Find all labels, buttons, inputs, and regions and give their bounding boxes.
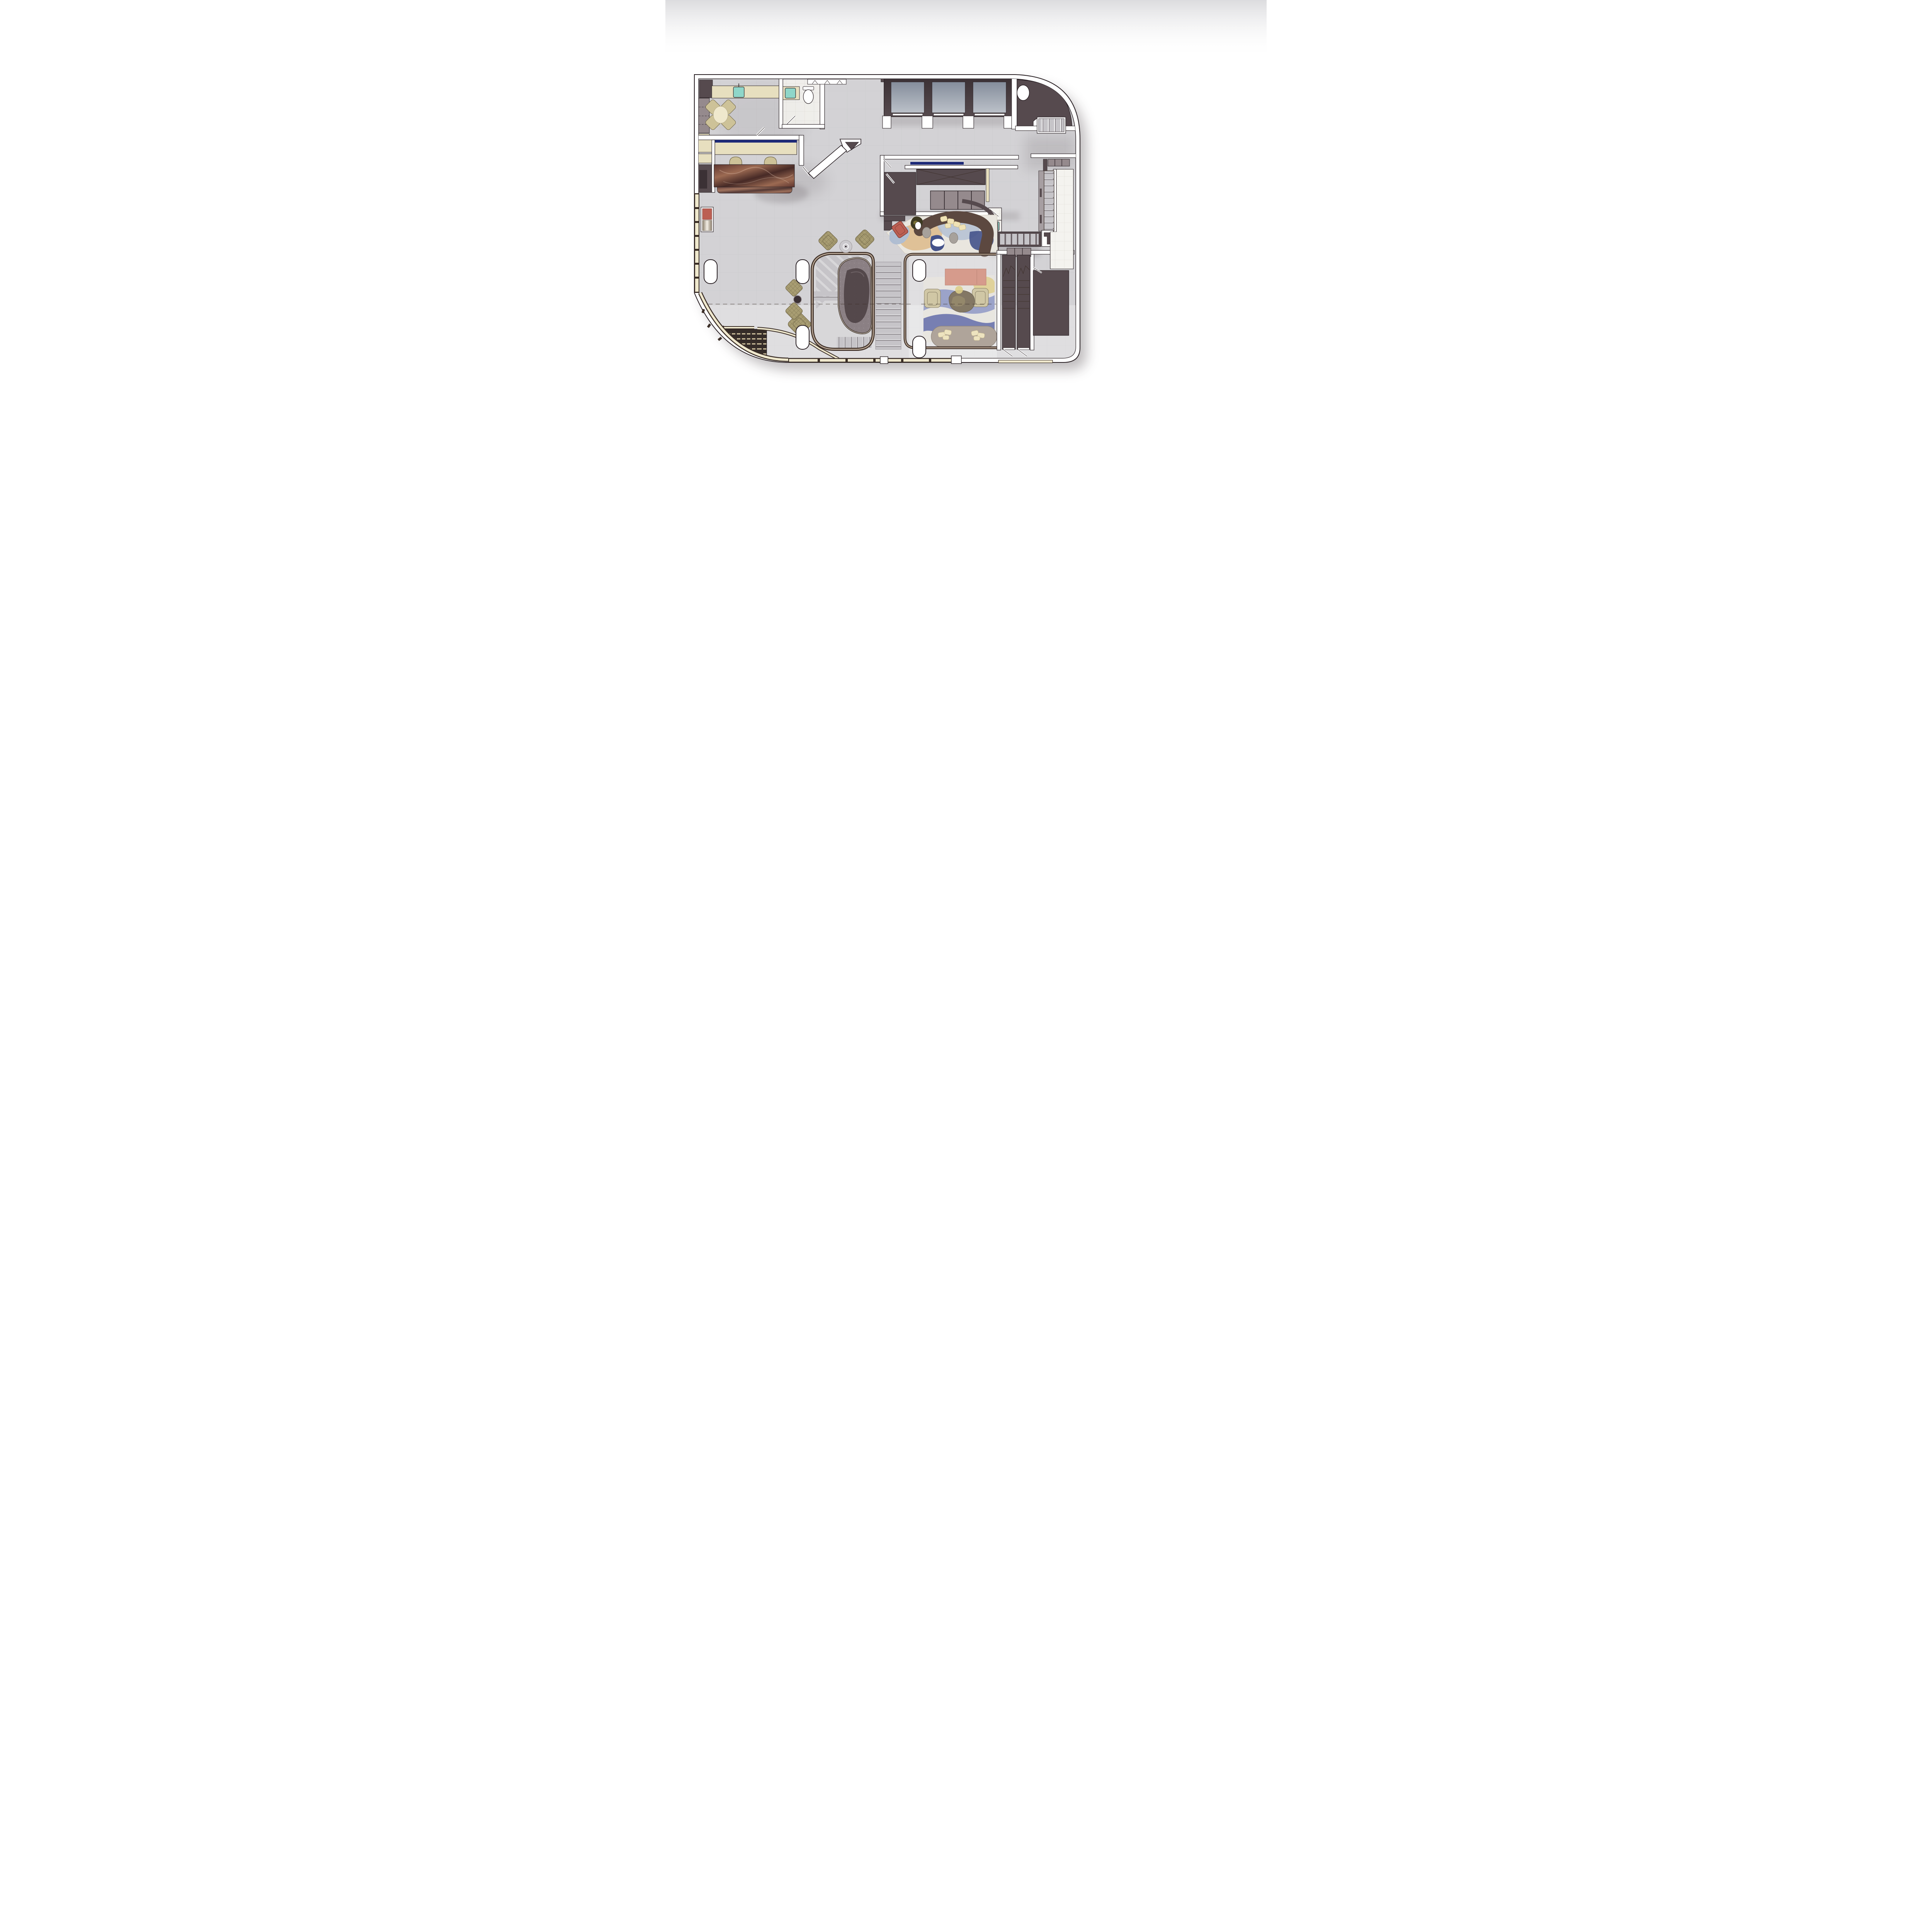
- entry-sill: [998, 360, 1053, 363]
- small-round-table: [794, 296, 801, 303]
- lounge-rug: [886, 215, 998, 253]
- credenza-navy-edge: [715, 140, 797, 143]
- stone-coffee-table: [949, 290, 975, 312]
- elevator-door: [934, 114, 964, 116]
- dining-set: [705, 99, 736, 131]
- floor-slab: [699, 79, 1076, 358]
- building-outer-wall: [694, 75, 1080, 362]
- restroom-door-edge: [785, 116, 795, 126]
- dining-chair: [720, 99, 736, 115]
- desk-front-ledge: [717, 187, 792, 193]
- corner-room-fill: [1017, 80, 1072, 128]
- restroom-door-leaf: [785, 116, 795, 126]
- red-armchair: [891, 221, 908, 239]
- landing-l-wall: [1044, 233, 1051, 244]
- left-window-band: [694, 193, 699, 293]
- dining-chair: [705, 99, 721, 115]
- curved-wall: [962, 201, 997, 251]
- feature-rail-inner: [812, 253, 873, 349]
- lounge-armchair-seat: [927, 292, 937, 305]
- elevator-door: [893, 114, 923, 116]
- upper-lounge: [886, 201, 998, 253]
- mullion: [845, 359, 848, 362]
- entry-mat: [723, 329, 767, 356]
- corner-room-wall: [1015, 126, 1077, 131]
- backdrop: [665, 0, 1267, 451]
- locker-row: [1007, 248, 1031, 257]
- arched-niche: [1033, 117, 1049, 128]
- column-pill: [704, 325, 717, 349]
- pit-rail-dark: [838, 258, 872, 333]
- core-walls: [880, 155, 1019, 216]
- canopy-floor-wash: [699, 305, 1077, 359]
- column-pill: [704, 260, 717, 284]
- mullion: [701, 309, 705, 313]
- cabinet-dividers: [699, 107, 709, 124]
- back-stair-horizontal: [998, 230, 1053, 257]
- bench-frame: [701, 207, 713, 232]
- right-boh: [997, 154, 1077, 358]
- bottom-window-band: [788, 356, 1053, 364]
- dark-cabinet: [1043, 159, 1047, 171]
- marble-veins: [719, 167, 793, 178]
- lobby-angled-wall: [803, 139, 861, 179]
- elevator-bank: [881, 76, 1017, 129]
- wall-niche-triangle: [845, 142, 859, 150]
- stone-table-top: [951, 296, 965, 306]
- pouf: [922, 227, 931, 238]
- corridor-door-edge: [1055, 289, 1065, 294]
- mop-sink: [990, 222, 999, 231]
- bottom-steps: [837, 337, 872, 348]
- entry-vestibule: [699, 304, 996, 359]
- shaft-treads: [1018, 281, 1029, 308]
- misc-doors: [883, 159, 1042, 273]
- column-pill: [796, 325, 809, 349]
- handrail-post: [1040, 215, 1042, 223]
- stair-flight: [1044, 171, 1054, 231]
- mullion: [695, 207, 699, 209]
- corner-shaft-room: [1015, 80, 1077, 131]
- bank-right-wall: [1012, 78, 1017, 129]
- cabinet-column: [699, 98, 709, 133]
- feature-floor: [812, 253, 873, 349]
- shaft-stub: [881, 76, 893, 82]
- lounge-armchair: [972, 288, 988, 307]
- reception-desk: [714, 165, 794, 187]
- floor-tile-grid: [699, 79, 1076, 358]
- mullion: [873, 359, 876, 362]
- luggage-shaft: [917, 169, 985, 185]
- break-room: [699, 80, 779, 150]
- cabinet-dividers: [944, 191, 971, 209]
- stair-shaft: [1002, 255, 1015, 349]
- sunken-lounge-stair: [812, 253, 873, 349]
- lounge-rail-mid: [905, 254, 997, 348]
- diagonal-wall: [808, 145, 847, 179]
- shaft-cross-lines: [917, 169, 985, 185]
- flag-wall: [840, 139, 861, 152]
- lower-rug: [923, 275, 995, 342]
- curved-sofa: [920, 217, 988, 251]
- core-cabinet-row: [930, 191, 985, 209]
- tiled-corridor: [1050, 169, 1073, 294]
- elevator-cab: [932, 82, 965, 113]
- wall-bench: [701, 207, 713, 232]
- elevator-cab: [973, 82, 1006, 113]
- column-pill: [796, 260, 809, 284]
- locker-row: [1048, 159, 1070, 166]
- column-pill: [913, 260, 926, 281]
- store-room: [696, 154, 712, 163]
- facade-pier: [880, 357, 888, 364]
- fabric-armchair: [818, 230, 838, 251]
- round-column: [1017, 85, 1029, 100]
- restroom-sink: [785, 88, 796, 98]
- stair-shafts: [1001, 255, 1074, 358]
- reception: [714, 157, 808, 203]
- hanger-symbols: [812, 80, 842, 84]
- restroom: [782, 80, 821, 126]
- armchair-cluster-top: [818, 229, 875, 253]
- column-pill: [913, 336, 926, 358]
- pit-rail-light: [838, 258, 872, 333]
- mullion: [695, 221, 699, 223]
- beige-cabinet: [699, 134, 709, 150]
- elevator-cabs: [891, 82, 1006, 116]
- elevator-lobby-piers: [883, 116, 1014, 128]
- feature-rail-mid: [812, 253, 873, 349]
- back-office: [696, 135, 804, 192]
- door-edge: [1033, 267, 1042, 273]
- pool-highlight: [851, 272, 864, 277]
- floor-plan-canvas: [665, 0, 1267, 451]
- navy-counter-edge: [910, 162, 964, 165]
- store-room: [696, 140, 712, 152]
- lower-lounge: [905, 254, 997, 358]
- lounge-rail-outer: [905, 254, 997, 348]
- shaft-door-edge: [1019, 350, 1027, 356]
- armchair-cluster-left: [785, 279, 803, 320]
- suite-walls: [696, 79, 825, 140]
- plant: [911, 216, 923, 229]
- fabric-armchair: [785, 302, 803, 320]
- dark-closet: [699, 80, 713, 98]
- service-closet: [696, 165, 712, 192]
- lower-rug-navy: [923, 314, 995, 338]
- building-drop-shadow: [702, 83, 1087, 370]
- lounge-armchair-seat: [975, 291, 985, 304]
- shaft-door-edge: [1004, 350, 1012, 356]
- shaft-treads: [1003, 281, 1015, 308]
- kitchen-sink: [733, 87, 744, 97]
- mullion: [929, 359, 931, 362]
- grand-stair: [876, 262, 901, 349]
- curtain-wall: [694, 193, 1053, 364]
- mullion: [707, 323, 711, 328]
- stair-landing-strip: [1039, 171, 1044, 231]
- lobby-floor: [699, 79, 1076, 358]
- floor-contents: [696, 76, 1077, 359]
- diagonal-steps: [816, 256, 871, 309]
- marble-veins: [723, 178, 789, 184]
- break-room-door-edge: [757, 128, 764, 135]
- mullion: [695, 249, 699, 251]
- salmon-daybed: [945, 269, 986, 285]
- curved-window-band: [700, 293, 788, 360]
- restroom-floor: [782, 80, 821, 126]
- dining-chair: [720, 114, 736, 131]
- top-haze: [665, 0, 1267, 58]
- mullion: [695, 235, 699, 237]
- elevator-cab: [891, 82, 924, 113]
- red-cushion: [702, 209, 712, 219]
- terrazzo-pit: [838, 258, 872, 333]
- closet-door-edge: [990, 209, 998, 216]
- kitchenette-counter: [712, 86, 779, 98]
- back-stair-vertical: [1039, 171, 1054, 231]
- diamond-ottoman: [787, 311, 812, 337]
- lounge-rail-inner: [905, 254, 997, 348]
- toilet: [803, 87, 814, 104]
- back-office-walls: [712, 135, 804, 192]
- reception-chair: [764, 157, 777, 167]
- break-line: [1003, 266, 1015, 277]
- handrail-post: [1040, 189, 1042, 197]
- metal-base: [702, 220, 712, 231]
- break-room-door-leaf: [757, 128, 764, 135]
- stair-shaft: [1017, 255, 1030, 349]
- janitor-closets: [988, 208, 1002, 234]
- storage-room: [884, 172, 916, 215]
- fabric-armchair: [854, 229, 875, 250]
- red-armchair-seat: [895, 224, 906, 235]
- mullion: [695, 277, 699, 279]
- desk-shadow: [754, 183, 808, 203]
- dining-table: [713, 106, 728, 123]
- low-counter: [884, 221, 892, 230]
- credenza: [715, 140, 797, 155]
- break-line: [1018, 266, 1029, 277]
- fabric-armchair: [785, 279, 803, 297]
- vestibule-glass-wall: [699, 326, 838, 359]
- stair-landing: [1042, 230, 1053, 247]
- dining-chair: [705, 114, 721, 131]
- column-pills: [704, 260, 926, 358]
- grand-stair-treads: [876, 262, 901, 349]
- lounge-armchair: [924, 289, 940, 308]
- mullion: [818, 359, 820, 362]
- feature-rail-outer: [812, 253, 873, 349]
- mullion: [901, 359, 903, 362]
- coat-closet: [808, 79, 846, 84]
- boh-walls: [997, 154, 1077, 350]
- page-background: [665, 0, 1267, 451]
- door-edge: [883, 159, 891, 168]
- low-counter: [884, 216, 905, 221]
- facade-pier: [951, 356, 961, 364]
- service-core: [880, 155, 1019, 234]
- round-side-table: [840, 240, 852, 253]
- lower-rug-yellow: [973, 276, 995, 294]
- locker-dividers: [1055, 159, 1062, 166]
- side-steps: [814, 291, 838, 301]
- mullion: [695, 263, 699, 265]
- shaft-threshold: [1003, 348, 1015, 350]
- shaft-threshold: [1018, 348, 1029, 350]
- rug-pattern: [889, 216, 993, 251]
- elevator-door: [975, 114, 1005, 116]
- interior-shadows: [699, 85, 1075, 257]
- lounge-wash: [909, 255, 997, 358]
- reception-chairs: [730, 157, 777, 167]
- floor-plan-svg: [665, 0, 1267, 451]
- elevator-shaft-surround: [884, 78, 1015, 117]
- gold-accent: [955, 286, 963, 294]
- lower-rug-blue: [923, 289, 995, 314]
- service-cabinet: [699, 170, 707, 189]
- storage-door-leaf: [886, 174, 894, 183]
- stair-treads: [1000, 234, 1039, 245]
- mullion: [718, 337, 722, 341]
- oval-sofa-pillows: [938, 330, 985, 340]
- pouf: [949, 233, 958, 243]
- storage-door-edge: [886, 174, 894, 183]
- upper-right-stair: [1037, 117, 1066, 133]
- stair-treads: [1039, 119, 1064, 132]
- beige-panel: [986, 168, 989, 202]
- vanity-counter: [782, 87, 799, 100]
- pit-dark-pool: [844, 268, 869, 323]
- reception-chair: [730, 157, 742, 167]
- side-table: [915, 222, 921, 230]
- oval-sofa: [931, 326, 997, 347]
- sofa-pillows: [940, 216, 966, 230]
- plant-room: [1033, 270, 1069, 335]
